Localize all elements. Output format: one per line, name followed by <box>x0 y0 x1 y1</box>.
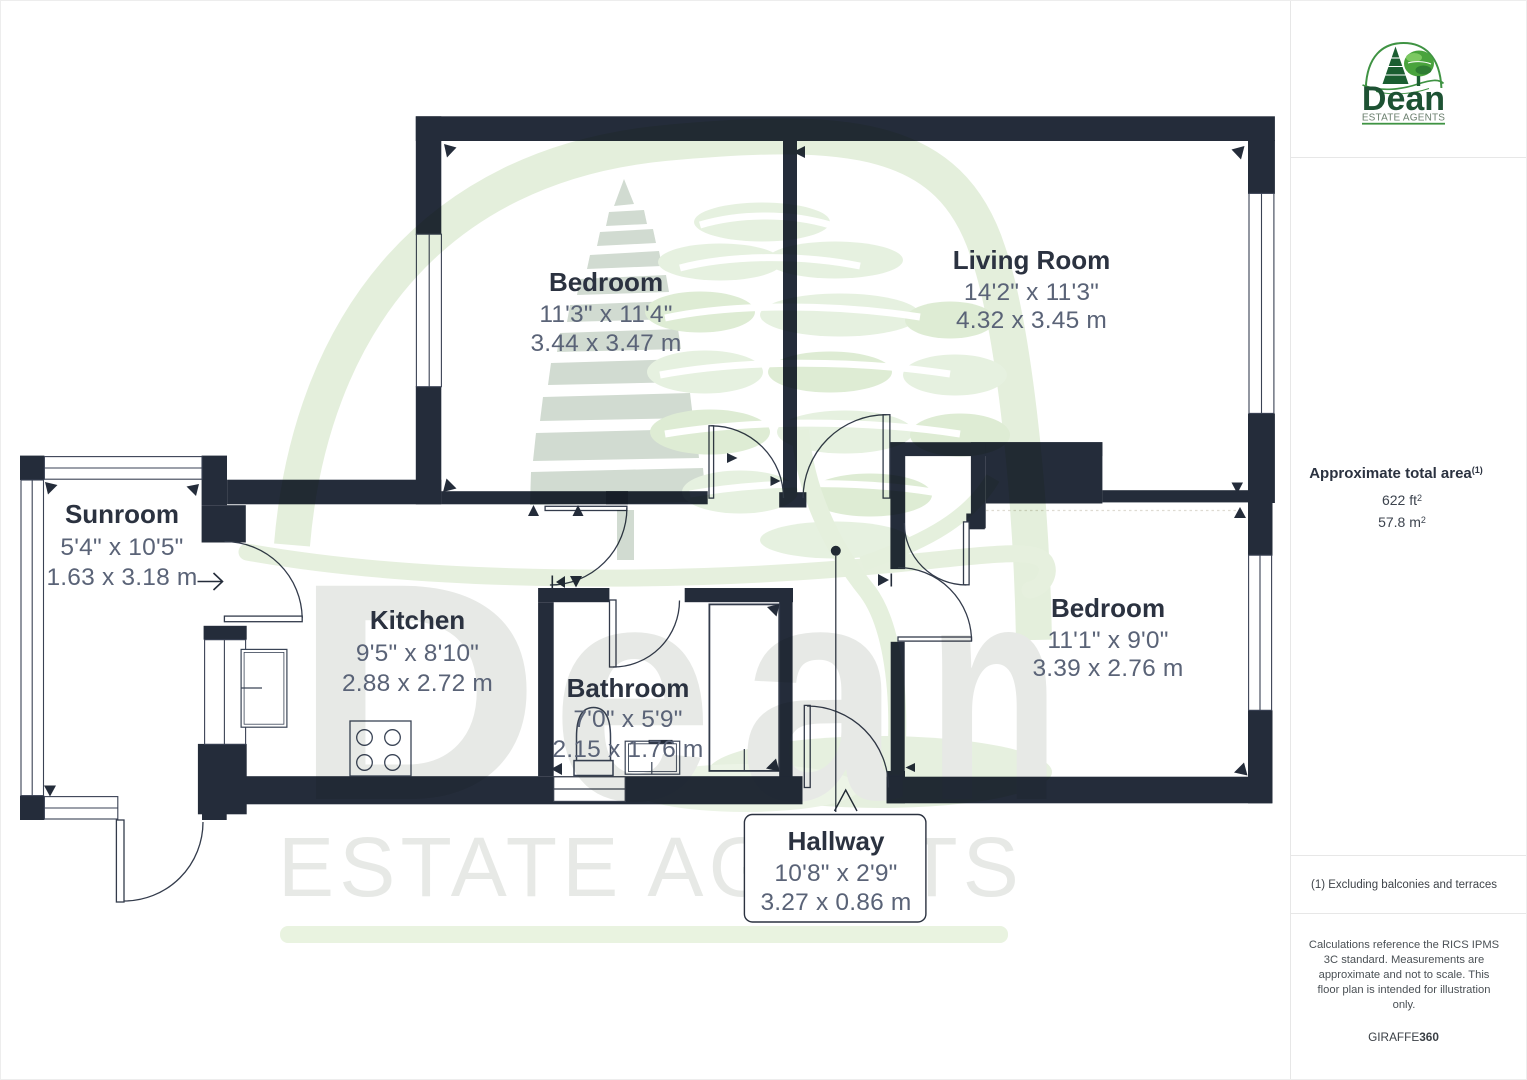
svg-text:4.32 x 3.45 m: 4.32 x 3.45 m <box>956 307 1107 334</box>
svg-text:14'2" x 11'3": 14'2" x 11'3" <box>964 279 1099 306</box>
svg-text:Calculations reference the RIC: Calculations reference the RICS IPMS <box>1309 939 1499 951</box>
svg-text:2.88 x 2.72 m: 2.88 x 2.72 m <box>342 670 493 697</box>
svg-text:(1) Excluding balconies and te: (1) Excluding balconies and terraces <box>1311 879 1497 891</box>
svg-text:ESTATE AGENTS: ESTATE AGENTS <box>1362 113 1445 124</box>
svg-text:Approximate total area(1): Approximate total area(1) <box>1309 465 1483 482</box>
svg-text:1.63 x 3.18 m: 1.63 x 3.18 m <box>46 564 197 591</box>
svg-text:11'3" x 11'4": 11'3" x 11'4" <box>539 301 672 328</box>
svg-text:Sunroom: Sunroom <box>65 499 179 529</box>
svg-text:2.15 x 1.76 m: 2.15 x 1.76 m <box>552 736 703 763</box>
svg-text:3C standard. Measurements are: 3C standard. Measurements are <box>1324 954 1484 966</box>
svg-text:57.8 m2: 57.8 m2 <box>1378 514 1426 530</box>
svg-text:Bedroom: Bedroom <box>549 267 663 297</box>
svg-text:Bedroom: Bedroom <box>1051 593 1165 623</box>
svg-text:622 ft2: 622 ft2 <box>1382 492 1422 508</box>
svg-text:Kitchen: Kitchen <box>370 605 465 635</box>
svg-text:3.44 x 3.47 m: 3.44 x 3.47 m <box>530 330 681 357</box>
svg-text:Living Room: Living Room <box>953 245 1110 275</box>
svg-text:7'0" x 5'9": 7'0" x 5'9" <box>573 706 682 733</box>
svg-text:9'5" x 8'10": 9'5" x 8'10" <box>356 640 479 667</box>
svg-text:floor plan is intended for ill: floor plan is intended for illustration <box>1318 984 1491 996</box>
svg-text:only.: only. <box>1393 999 1416 1011</box>
svg-text:3.27 x 0.86 m: 3.27 x 0.86 m <box>760 889 911 916</box>
svg-text:GIRAFFE360: GIRAFFE360 <box>1368 1030 1439 1044</box>
svg-text:5'4" x 10'5": 5'4" x 10'5" <box>60 534 183 561</box>
svg-text:3.39 x 2.76 m: 3.39 x 2.76 m <box>1032 655 1183 682</box>
svg-text:10'8" x 2'9": 10'8" x 2'9" <box>774 860 897 887</box>
svg-text:11'1" x 9'0": 11'1" x 9'0" <box>1047 627 1168 654</box>
svg-text:Hallway: Hallway <box>788 826 885 856</box>
svg-text:Bathroom: Bathroom <box>567 673 690 703</box>
svg-text:approximate and not to scale.: approximate and not to scale. This <box>1319 969 1490 981</box>
